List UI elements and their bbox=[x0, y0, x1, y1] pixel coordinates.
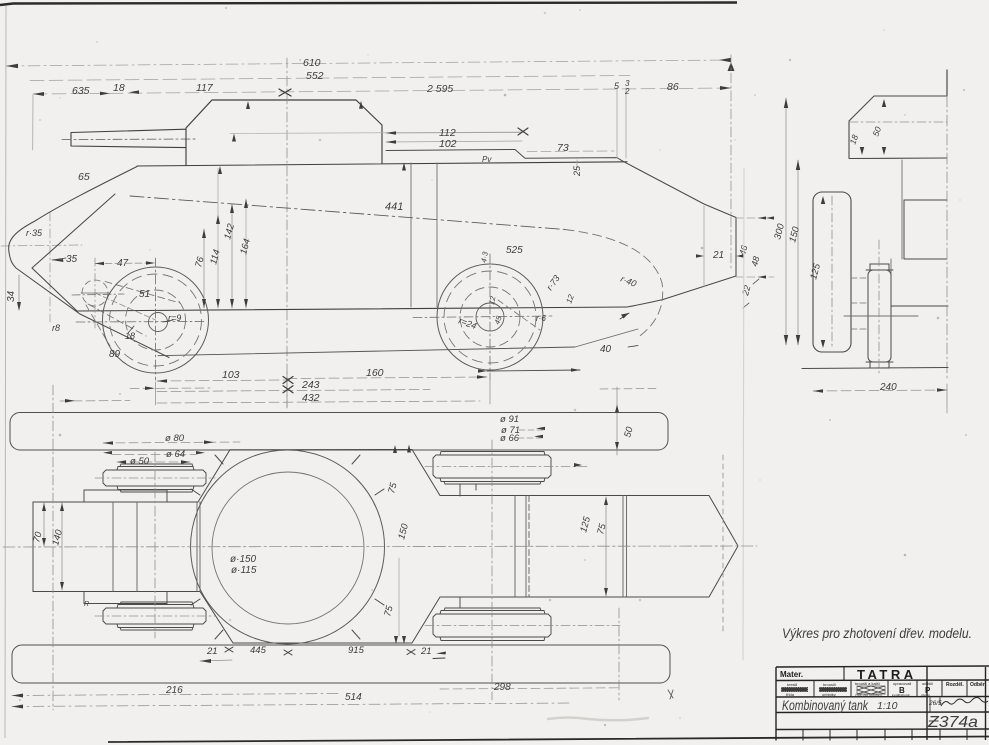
svg-text:117: 117 bbox=[196, 82, 214, 94]
svg-text:ø 50: ø 50 bbox=[130, 456, 150, 467]
svg-text:65: 65 bbox=[78, 171, 90, 183]
svg-text:35: 35 bbox=[66, 254, 78, 265]
svg-text:ø 66: ø 66 bbox=[500, 433, 520, 444]
svg-text:Mater.: Mater. bbox=[780, 670, 803, 679]
svg-text:Rozděl.: Rozděl. bbox=[946, 682, 964, 688]
svg-text:240: 240 bbox=[879, 382, 897, 393]
svg-text:40: 40 bbox=[600, 344, 612, 355]
svg-text:2 595: 2 595 bbox=[426, 83, 453, 95]
svg-text:ø 91: ø 91 bbox=[500, 414, 519, 425]
svg-text:73: 73 bbox=[557, 142, 569, 154]
svg-text:635: 635 bbox=[72, 85, 90, 97]
svg-text:25: 25 bbox=[572, 165, 582, 177]
svg-text:1:10: 1:10 bbox=[877, 700, 898, 712]
svg-text:432: 432 bbox=[302, 392, 320, 404]
svg-text:610: 610 bbox=[303, 57, 321, 69]
svg-text:Výkres pro zhotovení dřev. mod: Výkres pro zhotovení dřev. modelu. bbox=[782, 625, 972, 641]
svg-text:Ƶ374a: Ƶ374a bbox=[927, 714, 978, 731]
svg-text:TATRA: TATRA bbox=[857, 667, 917, 682]
svg-text:86: 86 bbox=[667, 81, 679, 93]
svg-text:Odběr: Odběr bbox=[970, 682, 985, 688]
svg-text:552: 552 bbox=[306, 70, 324, 82]
svg-text:přesn: přesn bbox=[921, 694, 930, 698]
svg-text:18: 18 bbox=[113, 82, 125, 94]
svg-text:ø 64: ø 64 bbox=[166, 449, 185, 460]
svg-text:číslo del výrobku: číslo del výrobku bbox=[855, 694, 882, 698]
svg-text:r=9: r=9 bbox=[168, 313, 181, 323]
svg-text:243: 243 bbox=[301, 379, 320, 391]
svg-text:2: 2 bbox=[624, 87, 630, 96]
svg-text:urbiniky: urbiniky bbox=[822, 692, 836, 697]
svg-text:441: 441 bbox=[385, 201, 403, 213]
svg-text:21: 21 bbox=[420, 646, 432, 657]
svg-text:915: 915 bbox=[348, 645, 365, 656]
svg-text:R: R bbox=[84, 601, 89, 608]
svg-text:525: 525 bbox=[506, 245, 523, 256]
svg-text:21: 21 bbox=[712, 250, 724, 261]
svg-text:160: 160 bbox=[366, 367, 384, 379]
svg-text:34: 34 bbox=[6, 290, 17, 302]
svg-text:216: 216 bbox=[165, 685, 183, 696]
svg-text:broušti a kalití: broušti a kalití bbox=[855, 681, 881, 686]
svg-text:102: 102 bbox=[439, 138, 457, 150]
svg-text:Kombinovaný tank: Kombinovaný tank bbox=[782, 698, 869, 713]
svg-text:brousili: brousili bbox=[823, 682, 836, 687]
svg-text:51: 51 bbox=[139, 289, 150, 300]
svg-text:kreslil: kreslil bbox=[787, 682, 797, 687]
svg-text:514: 514 bbox=[345, 692, 362, 703]
svg-text:r8: r8 bbox=[52, 323, 60, 333]
svg-text:r·6: r·6 bbox=[536, 314, 546, 323]
svg-text:18: 18 bbox=[125, 331, 135, 341]
svg-text:103: 103 bbox=[222, 369, 240, 381]
svg-text:kvalitativně: kvalitativně bbox=[892, 694, 910, 698]
svg-text:445: 445 bbox=[250, 645, 267, 656]
svg-text:r·35: r·35 bbox=[26, 228, 43, 238]
svg-text:ø 80: ø 80 bbox=[165, 433, 185, 444]
svg-text:ø·150: ø·150 bbox=[230, 554, 257, 565]
svg-text:Pv: Pv bbox=[482, 155, 492, 164]
svg-text:třída: třída bbox=[786, 692, 795, 697]
svg-text:ø·115: ø·115 bbox=[231, 565, 257, 576]
svg-text:21: 21 bbox=[206, 646, 218, 657]
svg-text:89: 89 bbox=[109, 349, 121, 360]
svg-text:298: 298 bbox=[493, 682, 511, 693]
